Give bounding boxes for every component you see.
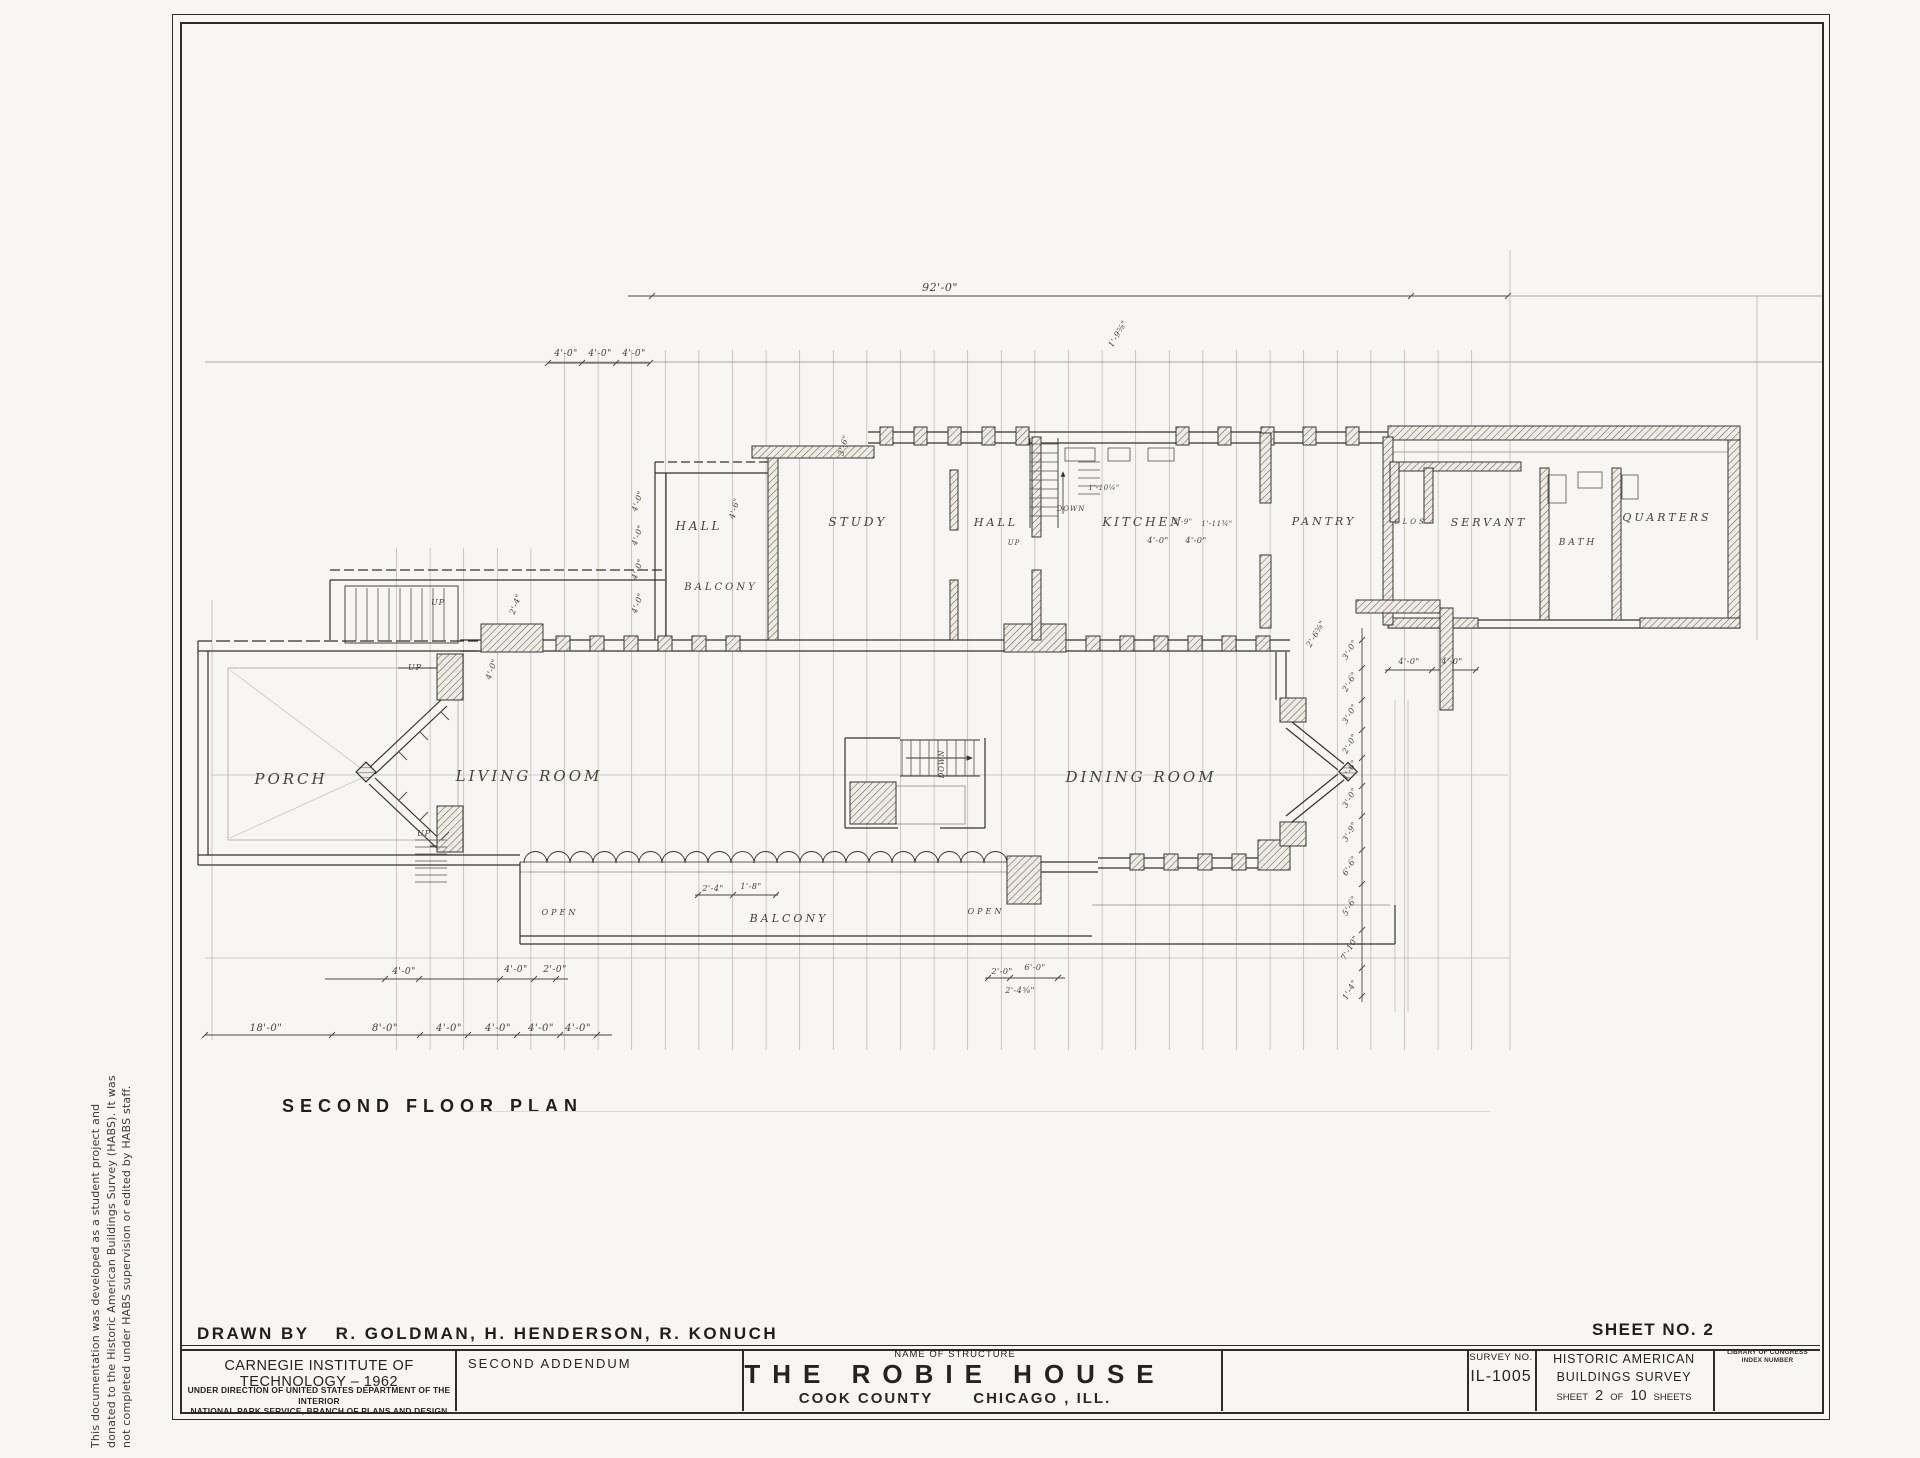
sheets-word: SHEETS <box>1654 1392 1692 1403</box>
drawn-by-label: DRAWN BY <box>197 1324 310 1343</box>
city: CHICAGO , ILL. <box>973 1390 1111 1407</box>
title-band-divider <box>1221 1351 1223 1411</box>
county: COOK COUNTY <box>799 1390 934 1407</box>
addendum-label: SECOND ADDENDUM <box>468 1356 632 1371</box>
sheet-word: SHEET <box>1556 1392 1588 1403</box>
title-band-divider <box>455 1351 457 1411</box>
sheet-current: 2 <box>1595 1388 1603 1404</box>
library-of-congress-label: LIBRARY OF CONGRESS INDEX NUMBER <box>1716 1349 1819 1365</box>
drawn-by-line: DRAWN BYR. GOLDMAN, H. HENDERSON, R. KON… <box>197 1324 778 1344</box>
sheet-total: 10 <box>1630 1388 1646 1404</box>
plan-title: SECOND FLOOR PLAN <box>282 1096 583 1117</box>
sheet-number: SHEET NO. 2 <box>1592 1320 1714 1340</box>
habs-sheet: PORCHLIVING ROOMDINING ROOMHALLSTUDYHALL… <box>0 0 1920 1458</box>
title-band-divider <box>1713 1351 1715 1411</box>
structure-name: THE ROBIE HOUSE <box>735 1359 1175 1390</box>
loc-line: INDEX NUMBER <box>1716 1357 1819 1365</box>
side-note-line: This documentation was developed as a st… <box>88 870 104 1448</box>
side-note-line: donated to the Historic American Buildin… <box>104 870 120 1448</box>
caption-rule <box>470 1111 1490 1112</box>
sheet-border-inner <box>180 22 1824 1414</box>
structure-location: COOK COUNTY CHICAGO , ILL. <box>735 1390 1175 1407</box>
direction-line: NATIONAL PARK SERVICE, BRANCH OF PLANS A… <box>186 1406 452 1417</box>
direction-line: UNDER DIRECTION OF UNITED STATES DEPARTM… <box>186 1385 452 1406</box>
survey-number: IL-1005 <box>1469 1368 1533 1386</box>
title-band-rule <box>180 1345 1820 1346</box>
habs-title-line: BUILDINGS SURVEY <box>1537 1370 1711 1384</box>
survey-number-label: SURVEY NO. <box>1469 1352 1533 1363</box>
of-word: OF <box>1610 1392 1623 1403</box>
loc-line: LIBRARY OF CONGRESS <box>1716 1349 1819 1357</box>
habs-title-line: HISTORIC AMERICAN <box>1537 1352 1711 1366</box>
sheet-count: SHEET 2 OF 10 SHEETS <box>1537 1388 1711 1404</box>
side-note-line: not completed under HABS supervision or … <box>119 870 135 1448</box>
drawn-by-names: R. GOLDMAN, H. HENDERSON, R. KONUCH <box>336 1324 779 1343</box>
side-note: This documentation was developed as a st… <box>88 870 136 1448</box>
direction-note: UNDER DIRECTION OF UNITED STATES DEPARTM… <box>186 1385 452 1417</box>
